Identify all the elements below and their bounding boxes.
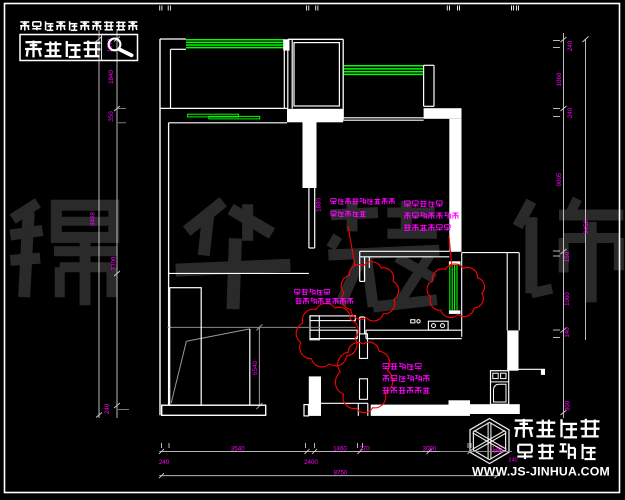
svg-text:240: 240	[567, 107, 574, 118]
svg-text:1840: 1840	[108, 70, 115, 84]
svg-text:350: 350	[108, 111, 115, 122]
svg-text:240: 240	[508, 458, 517, 464]
svg-text:6540: 6540	[252, 360, 259, 375]
svg-text:WWW.JS-JINHUA.COM: WWW.JS-JINHUA.COM	[472, 465, 610, 479]
svg-text:8750: 8750	[334, 469, 348, 476]
svg-text:270: 270	[359, 445, 370, 452]
svg-text:240: 240	[104, 403, 111, 414]
svg-text:240: 240	[494, 449, 503, 455]
svg-text:8468: 8468	[90, 212, 97, 226]
svg-text:240: 240	[567, 40, 574, 51]
svg-text:150: 150	[564, 251, 571, 262]
svg-text:7300: 7300	[111, 256, 118, 270]
svg-text:240: 240	[159, 459, 170, 466]
svg-text:9450: 9450	[583, 220, 590, 234]
svg-text:1880: 1880	[316, 198, 323, 212]
svg-text:2400: 2400	[304, 459, 318, 466]
svg-text:140: 140	[564, 327, 571, 338]
svg-text:300: 300	[565, 400, 572, 411]
svg-text:1460: 1460	[333, 445, 347, 452]
svg-text:3090: 3090	[423, 445, 437, 452]
svg-text:1060: 1060	[556, 72, 563, 86]
svg-text:1060: 1060	[564, 292, 571, 306]
svg-text:9005: 9005	[556, 172, 563, 186]
svg-text:3540: 3540	[231, 445, 245, 452]
